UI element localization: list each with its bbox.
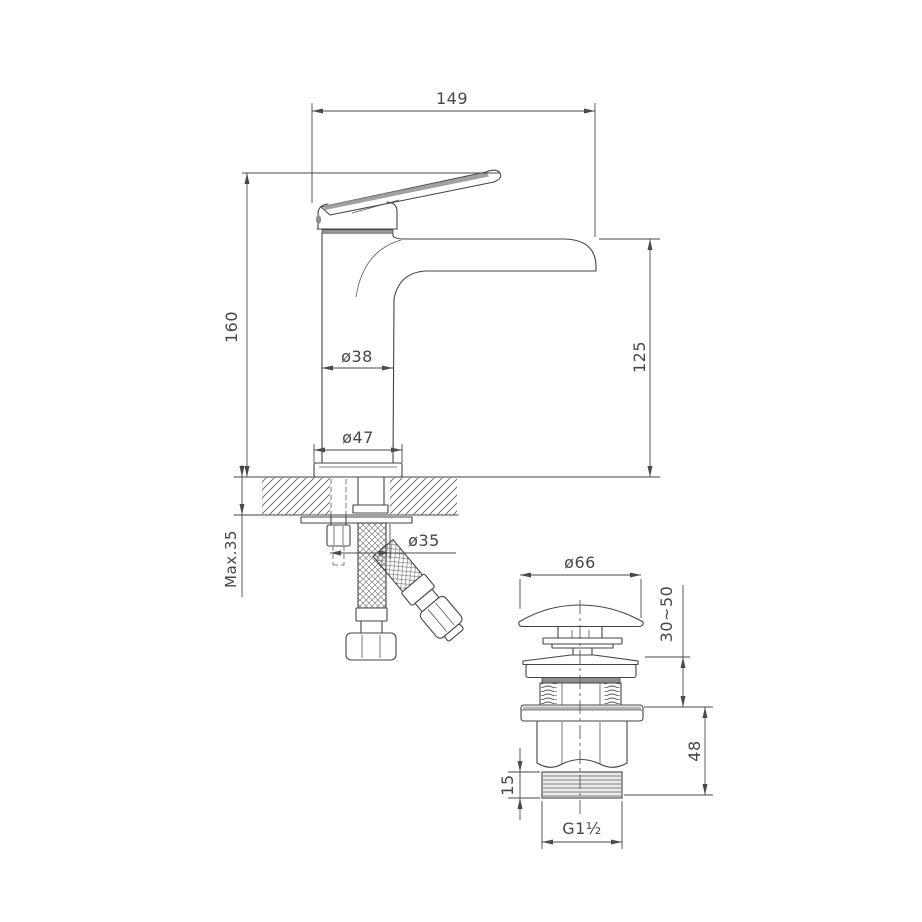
counter-hatch-left	[262, 478, 330, 515]
waste-hex-body	[537, 721, 627, 767]
dim-label-15: 15	[498, 774, 517, 795]
hose-hex-nut	[346, 633, 396, 660]
dim-thread-length: 15	[498, 748, 540, 820]
stud-tail	[333, 546, 344, 565]
dim-body-diameter: ø38	[322, 347, 393, 371]
faucet-technical-drawing: 149 160 125 ø38 ø47	[0, 0, 922, 922]
dim-label-48: 48	[685, 740, 704, 761]
dim-label-max35: Max.35	[222, 530, 240, 588]
technical-drawing-page: 149 160 125 ø38 ø47	[0, 0, 922, 922]
dim-label-149: 149	[436, 89, 468, 108]
dim-thread-spec: G1½	[542, 801, 622, 849]
mounting-plate	[301, 517, 412, 523]
waste-seat-washer	[523, 655, 638, 665]
counter-hatch-right	[390, 478, 457, 515]
dim-spout-reach: 149	[312, 89, 595, 237]
dim-label-125: 125	[630, 341, 649, 373]
dim-deck-thickness: Max.35	[222, 465, 245, 597]
handle-lever	[321, 170, 501, 215]
dim-label-d38: ø38	[341, 347, 373, 366]
waste-dome-cap	[519, 605, 643, 627]
base-plate	[314, 463, 402, 477]
dim-spout-height: 125	[599, 239, 660, 477]
popup-waste-view: ø66 30~50 48 15 G1½	[498, 553, 713, 849]
dim-label-3050: 30~50	[657, 586, 676, 643]
dim-label-160: 160	[222, 311, 241, 343]
waste-flange	[521, 705, 643, 721]
mounting-nut	[327, 525, 350, 546]
waste-bottom-thread	[542, 772, 622, 798]
dim-mount-range: 30~50	[645, 585, 690, 707]
faucet-side-view: 149 160 125 ø38 ø47	[222, 89, 660, 660]
waste-body-ring	[526, 665, 636, 678]
countertop-section	[234, 477, 660, 515]
dim-label-d35: ø35	[408, 531, 440, 550]
pivot-dot	[316, 215, 321, 224]
dim-label-d47: ø47	[342, 428, 374, 447]
waste-upper-thread	[540, 678, 621, 706]
waste-stem	[543, 627, 622, 656]
neck-ring	[322, 230, 393, 233]
dim-label-g112: G1½	[562, 819, 602, 838]
dim-label-d66: ø66	[564, 553, 596, 572]
dim-base-diameter: ø47	[314, 428, 402, 463]
